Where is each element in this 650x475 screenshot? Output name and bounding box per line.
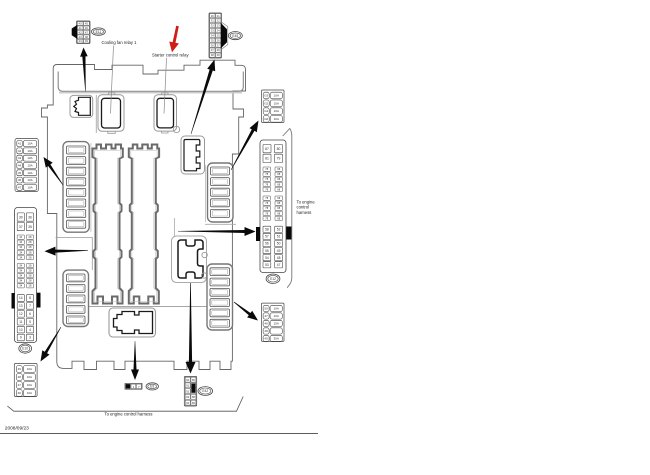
- svg-text:44: 44: [18, 164, 22, 168]
- svg-text:23: 23: [217, 24, 221, 28]
- svg-text:79: 79: [277, 157, 281, 161]
- svg-text:3: 3: [29, 336, 31, 340]
- svg-text:90: 90: [186, 378, 190, 382]
- svg-text:45: 45: [18, 171, 22, 175]
- svg-text:27: 27: [217, 43, 221, 47]
- svg-text:10A: 10A: [27, 383, 32, 387]
- svg-text:36: 36: [28, 215, 32, 219]
- svg-text:8: 8: [29, 296, 31, 300]
- svg-text:28: 28: [217, 48, 221, 52]
- svg-text:Cooling fan relay 1: Cooling fan relay 1: [102, 40, 138, 45]
- svg-text:46: 46: [264, 322, 268, 326]
- svg-text:50: 50: [277, 242, 281, 246]
- svg-text:10A: 10A: [27, 367, 32, 371]
- svg-text:91: 91: [186, 384, 190, 388]
- svg-text:10A: 10A: [274, 94, 279, 98]
- svg-text:80: 80: [277, 147, 281, 151]
- svg-text:10A: 10A: [274, 109, 279, 113]
- svg-text:92: 92: [186, 389, 190, 393]
- svg-text:46: 46: [85, 26, 89, 30]
- svg-text:E9: E9: [150, 385, 154, 389]
- svg-text:30A: 30A: [274, 337, 279, 341]
- svg-text:48: 48: [264, 329, 268, 333]
- svg-text:47: 47: [277, 263, 281, 267]
- svg-text:32: 32: [211, 24, 215, 28]
- svg-text:25: 25: [217, 34, 221, 38]
- svg-text:53: 53: [265, 263, 269, 267]
- svg-text:10A: 10A: [27, 149, 32, 153]
- svg-text:54: 54: [265, 256, 269, 260]
- svg-text:E11: E11: [96, 30, 102, 34]
- svg-text:48: 48: [18, 375, 22, 379]
- svg-text:41: 41: [79, 26, 83, 30]
- svg-text:58: 58: [265, 228, 269, 232]
- svg-text:21: 21: [217, 14, 221, 18]
- svg-text:39: 39: [19, 215, 23, 219]
- svg-text:10A: 10A: [27, 391, 32, 395]
- svg-text:34: 34: [211, 34, 215, 38]
- svg-text:48: 48: [277, 256, 281, 260]
- svg-text:35: 35: [28, 225, 32, 229]
- svg-text:15A: 15A: [274, 322, 279, 326]
- svg-text:52: 52: [277, 228, 281, 232]
- svg-text:85: 85: [192, 378, 196, 382]
- svg-text:38: 38: [211, 53, 215, 57]
- svg-text:G2: G2: [264, 101, 268, 105]
- svg-text:30: 30: [211, 14, 215, 18]
- svg-text:50: 50: [264, 307, 268, 311]
- svg-text:89: 89: [192, 401, 196, 405]
- svg-text:13: 13: [19, 304, 23, 308]
- svg-text:36: 36: [211, 43, 215, 47]
- svg-text:14: 14: [19, 296, 23, 300]
- svg-text:6: 6: [29, 312, 31, 316]
- svg-text:37: 37: [211, 48, 215, 52]
- svg-text:12: 12: [19, 312, 23, 316]
- svg-text:55: 55: [265, 249, 269, 253]
- svg-text:49: 49: [85, 39, 89, 43]
- svg-text:42: 42: [18, 149, 22, 153]
- svg-text:10A: 10A: [27, 171, 32, 175]
- svg-text:E10: E10: [22, 347, 28, 351]
- svg-text:G6: G6: [264, 117, 268, 121]
- svg-text:10A: 10A: [27, 164, 32, 168]
- svg-text:51: 51: [277, 235, 281, 239]
- svg-text:2008/09/23: 2008/09/23: [5, 425, 29, 431]
- svg-text:49: 49: [277, 249, 281, 253]
- svg-text:5: 5: [29, 320, 31, 324]
- svg-text:46: 46: [18, 178, 22, 182]
- svg-text:88: 88: [192, 395, 196, 399]
- svg-text:7: 7: [29, 304, 31, 308]
- svg-text:10A: 10A: [274, 117, 279, 121]
- svg-text:49: 49: [18, 367, 22, 371]
- svg-text:31: 31: [211, 19, 215, 23]
- svg-text:43: 43: [18, 156, 22, 160]
- svg-text:37: 37: [19, 225, 23, 229]
- svg-text:10A: 10A: [274, 101, 279, 105]
- svg-text:47: 47: [18, 383, 22, 387]
- svg-text:42: 42: [79, 30, 83, 34]
- svg-text:G3: G3: [264, 94, 268, 98]
- svg-text:E45: E45: [232, 34, 238, 38]
- svg-text:22: 22: [217, 19, 221, 23]
- svg-text:33: 33: [211, 29, 215, 33]
- svg-text:10A: 10A: [274, 307, 279, 311]
- svg-text:47: 47: [264, 314, 268, 318]
- svg-text:48: 48: [85, 35, 89, 39]
- svg-text:9: 9: [20, 336, 22, 340]
- svg-text:47: 47: [18, 185, 22, 189]
- svg-text:26: 26: [217, 38, 221, 42]
- svg-text:10A: 10A: [27, 185, 32, 189]
- svg-text:45: 45: [264, 337, 268, 341]
- svg-text:45: 45: [85, 22, 89, 26]
- svg-text:87: 87: [265, 147, 269, 151]
- svg-text:46: 46: [18, 391, 22, 395]
- svg-text:10: 10: [19, 328, 23, 332]
- svg-text:Starter control relay: Starter control relay: [152, 52, 189, 57]
- svg-text:56: 56: [265, 242, 269, 246]
- svg-text:35: 35: [211, 38, 215, 42]
- svg-text:4: 4: [29, 328, 31, 332]
- svg-text:E12: E12: [270, 277, 276, 281]
- svg-text:15A: 15A: [27, 142, 32, 146]
- svg-text:To engine control harness: To engine control harness: [105, 412, 153, 417]
- svg-text:41: 41: [18, 142, 22, 146]
- svg-text:harness: harness: [297, 210, 312, 215]
- svg-text:44: 44: [79, 39, 83, 43]
- svg-text:47: 47: [85, 30, 89, 34]
- svg-text:10A: 10A: [27, 178, 32, 182]
- svg-text:43: 43: [79, 35, 83, 39]
- svg-text:81: 81: [265, 157, 269, 161]
- svg-text:24: 24: [217, 29, 221, 33]
- svg-text:10A: 10A: [27, 156, 32, 160]
- svg-text:11: 11: [19, 320, 23, 324]
- svg-text:E42: E42: [202, 389, 208, 393]
- svg-text:94: 94: [186, 401, 190, 405]
- svg-text:10A: 10A: [274, 314, 279, 318]
- svg-text:57: 57: [265, 235, 269, 239]
- svg-text:40: 40: [79, 22, 83, 26]
- svg-text:93: 93: [186, 395, 190, 399]
- svg-text:G4: G4: [264, 109, 268, 113]
- svg-text:10A: 10A: [27, 375, 32, 379]
- svg-text:29: 29: [217, 53, 221, 57]
